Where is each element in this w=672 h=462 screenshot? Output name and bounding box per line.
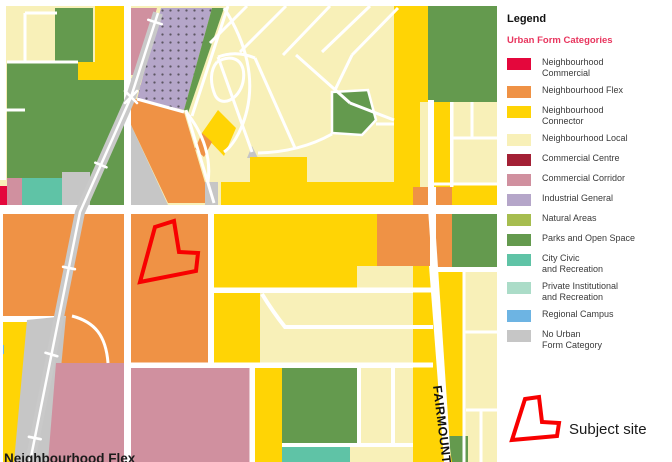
map-block-top-left xyxy=(0,6,124,205)
map-region xyxy=(7,178,22,205)
subject-site-key: Subject site xyxy=(507,394,647,446)
legend-item-neighbourhood-flex: Neighbourhood Flex xyxy=(507,85,672,98)
map-region xyxy=(131,214,208,363)
legend-item-neighbourhood-connector: NeighbourhoodConnector xyxy=(507,105,672,126)
map-region xyxy=(357,266,413,288)
legend-item-commercial-centre: Commercial Centre xyxy=(507,153,672,166)
road xyxy=(0,214,3,462)
map-region xyxy=(452,185,497,205)
road xyxy=(0,6,6,180)
map-block-top-center xyxy=(131,6,430,205)
swatch-commercial-centre xyxy=(507,154,531,166)
legend-label: Parks and Open Space xyxy=(542,233,635,244)
swatch-city-civic xyxy=(507,254,531,266)
legend-item-regional-campus: Regional Campus xyxy=(507,309,672,322)
legend-item-parks-open-space: Parks and Open Space xyxy=(507,233,672,246)
map-region xyxy=(214,293,260,363)
map-region xyxy=(394,6,428,102)
swatch-regional-campus xyxy=(507,310,531,322)
map-region xyxy=(0,186,7,205)
map-region xyxy=(350,447,413,462)
legend-label: Private Institutional xyxy=(542,281,618,292)
legend-item-commercial-corridor: Commercial Corridor xyxy=(507,173,672,186)
map-block-bottom-left xyxy=(0,214,124,462)
map-region xyxy=(436,187,452,205)
legend-label: Neighbourhood xyxy=(542,105,604,116)
urban-form-map: FAIRMOUNT Neighbourhood Flex xyxy=(0,0,497,462)
map-region xyxy=(282,368,357,445)
map-region xyxy=(282,447,350,462)
legend-label: City Civic xyxy=(542,253,603,264)
map-region xyxy=(395,368,413,443)
figure: FAIRMOUNT Neighbourhood Flex Legend Urba… xyxy=(0,0,672,462)
road-horizontal-main xyxy=(0,205,497,213)
legend-item-no-urban-form: No UrbanForm Category xyxy=(507,329,672,350)
map-region xyxy=(22,178,62,205)
road-vertical-main xyxy=(124,0,131,462)
map-canvas: FAIRMOUNT xyxy=(0,0,497,462)
legend-label: No Urban xyxy=(542,329,602,340)
legend-subtitle: Urban Form Categories xyxy=(507,35,672,46)
map-region xyxy=(452,102,497,185)
map-region xyxy=(452,214,497,270)
legend-label: Natural Areas xyxy=(542,213,597,224)
map-region xyxy=(250,157,307,182)
swatch-neighbourhood-commercial xyxy=(507,58,531,70)
map-region xyxy=(377,214,430,266)
legend-panel: Legend Urban Form Categories Neighbourho… xyxy=(505,0,672,462)
legend-label: Form Category xyxy=(542,340,602,351)
legend-label: Neighbourhood Flex xyxy=(542,85,623,96)
map-caption: Neighbourhood Flex xyxy=(4,451,135,462)
subject-site-icon-shape xyxy=(512,397,559,440)
swatch-neighbourhood-flex xyxy=(507,86,531,98)
map-region xyxy=(436,214,452,267)
map-region xyxy=(221,182,413,205)
map-region xyxy=(131,368,250,462)
map-region xyxy=(413,187,430,205)
legend-item-city-civic: City Civicand Recreation xyxy=(507,253,672,274)
legend-title: Legend xyxy=(507,13,672,25)
swatch-commercial-corridor xyxy=(507,174,531,186)
subject-site-icon xyxy=(507,394,563,446)
map-region xyxy=(434,102,450,187)
swatch-neighbourhood-connector xyxy=(507,106,531,118)
legend-label: Regional Campus xyxy=(542,309,614,320)
map-region xyxy=(361,368,391,443)
map-block-top-right xyxy=(428,6,497,205)
map-region xyxy=(55,8,93,62)
map-region xyxy=(48,363,124,462)
legend-item-private-institutional: Private Institutionaland Recreation xyxy=(507,281,672,302)
map-region xyxy=(255,368,282,462)
road xyxy=(0,0,497,6)
legend-label: Neighbourhood xyxy=(542,57,604,68)
legend-label: Connector xyxy=(542,116,604,127)
swatch-parks-open-space xyxy=(507,234,531,246)
legend-label: Commercial Corridor xyxy=(542,173,625,184)
legend-label: Neighbourhood Local xyxy=(542,133,628,144)
map-region xyxy=(214,214,377,288)
legend-items: NeighbourhoodCommercial Neighbourhood Fl… xyxy=(505,57,672,350)
map-region-park xyxy=(332,90,376,135)
legend-item-natural-areas: Natural Areas xyxy=(507,213,672,226)
swatch-private-institutional xyxy=(507,282,531,294)
swatch-natural-areas xyxy=(507,214,531,226)
legend-label: and Recreation xyxy=(542,292,618,303)
map-region xyxy=(428,6,497,102)
legend-label: Commercial Centre xyxy=(542,153,620,164)
legend-label: Commercial xyxy=(542,68,604,79)
legend-item-industrial-general: Industrial General xyxy=(507,193,672,206)
swatch-no-urban-form xyxy=(507,330,531,342)
legend-label: Industrial General xyxy=(542,193,613,204)
road xyxy=(208,214,214,365)
subject-site-label: Subject site xyxy=(569,421,647,438)
swatch-industrial-general xyxy=(507,194,531,206)
legend-item-neighbourhood-local: Neighbourhood Local xyxy=(507,133,672,146)
swatch-neighbourhood-local xyxy=(507,134,531,146)
legend-label: and Recreation xyxy=(542,264,603,275)
road xyxy=(428,100,434,206)
legend-item-neighbourhood-commercial: NeighbourhoodCommercial xyxy=(507,57,672,78)
